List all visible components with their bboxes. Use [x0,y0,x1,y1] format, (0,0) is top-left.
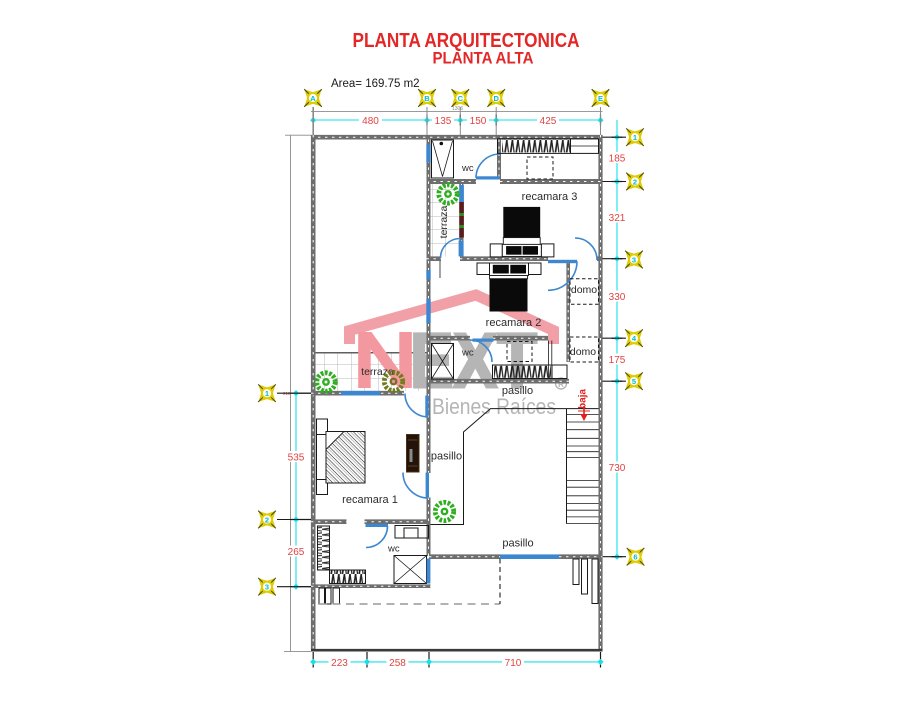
svg-text:wc: wc [461,348,474,359]
svg-text:425: 425 [540,116,557,127]
svg-text:pasillo: pasillo [502,385,533,397]
svg-text:E: E [598,94,603,103]
svg-text:B: B [424,94,430,103]
svg-text:recamara 1: recamara 1 [342,494,398,506]
svg-text:pasillo: pasillo [431,451,462,463]
svg-text:2: 2 [633,178,637,187]
svg-text:baja: baja [578,389,589,409]
svg-text:3: 3 [632,256,636,265]
svg-text:175: 175 [609,355,626,366]
svg-text:710: 710 [505,658,522,669]
svg-text:3: 3 [265,583,269,592]
svg-text:185: 185 [609,154,626,165]
svg-text:wc: wc [461,163,474,174]
svg-text:2: 2 [265,516,269,525]
svg-text:330: 330 [609,292,626,303]
svg-text:D: D [493,94,499,103]
svg-text:150: 150 [470,116,487,127]
svg-text:730: 730 [609,463,626,474]
svg-text:258: 258 [389,658,406,669]
svg-text:wc: wc [387,544,400,555]
svg-text:135: 135 [435,116,452,127]
svg-text:pasillo: pasillo [502,538,533,550]
svg-text:6: 6 [633,553,637,562]
svg-text:535: 535 [288,453,305,464]
svg-text:C: C [458,94,464,103]
svg-text:domo: domo [571,284,597,296]
svg-text:1306: 1306 [452,106,463,112]
svg-text:PLANTA ALTA: PLANTA ALTA [433,50,534,68]
svg-text:223: 223 [331,658,348,669]
svg-text:Bienes Raíces: Bienes Raíces [432,394,556,419]
svg-text:480: 480 [362,116,379,127]
svg-text:5: 5 [632,377,636,386]
svg-text:1: 1 [633,133,637,142]
svg-text:321: 321 [609,213,626,224]
svg-text:terraza: terraza [438,206,450,239]
svg-text:recamara 3: recamara 3 [522,191,578,203]
svg-text:domo: domo [570,346,596,358]
svg-text:Area= 169.75 m2: Area= 169.75 m2 [331,78,420,90]
svg-text:A: A [310,94,316,103]
svg-text:recamara 2: recamara 2 [486,317,542,329]
svg-text:1: 1 [265,389,269,398]
svg-text:265: 265 [288,547,305,558]
